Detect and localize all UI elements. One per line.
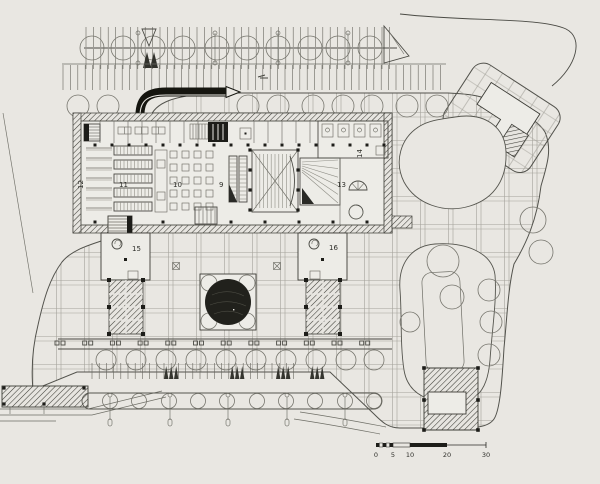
column-dot	[82, 386, 85, 389]
column-dot	[248, 168, 251, 171]
column-dot	[145, 144, 148, 147]
room-label-16: 16	[329, 244, 338, 252]
column-dot	[296, 188, 299, 191]
column-dot	[264, 144, 267, 147]
column-dot	[107, 332, 111, 336]
scale-tick-0: 0	[374, 451, 378, 459]
scale-tick-5: 5	[391, 451, 395, 459]
column-dot	[366, 144, 369, 147]
column-dot	[321, 258, 324, 261]
column-dot	[141, 278, 145, 282]
room-label-13: 13	[337, 181, 346, 189]
east-link-hatch	[392, 216, 412, 228]
column-dot	[476, 428, 480, 432]
column-dot	[422, 398, 426, 402]
column-dot	[304, 278, 308, 282]
column-dot	[338, 305, 342, 309]
column-dot	[230, 221, 233, 224]
column-dot	[162, 221, 165, 224]
column-dot	[332, 144, 335, 147]
column-dot	[162, 144, 165, 147]
fountain-speck	[233, 309, 234, 310]
column-dot	[2, 386, 5, 389]
column-dot	[107, 278, 111, 282]
column-dot	[349, 144, 352, 147]
scale-tick-30: 30	[482, 451, 490, 459]
column-dot	[422, 428, 426, 432]
column-dot	[338, 278, 342, 282]
lawn-blob-north	[399, 116, 506, 209]
column-dot	[248, 208, 251, 211]
column-dot	[296, 208, 299, 211]
column-dot	[422, 366, 426, 370]
stair-dark	[84, 124, 89, 141]
column-dot	[124, 258, 127, 261]
wall-west	[73, 113, 81, 233]
column-dot	[107, 305, 111, 309]
column-dot	[248, 148, 251, 151]
scale-tick-10: 10	[406, 451, 414, 459]
column-dot	[128, 144, 131, 147]
room-label-10: 10	[173, 181, 182, 189]
wall-north	[73, 113, 392, 121]
column-dot	[111, 144, 114, 147]
tower-15	[101, 233, 150, 280]
room-label-11: 11	[119, 181, 128, 189]
column-dot	[383, 144, 386, 147]
column-dot	[332, 221, 335, 224]
column-dot	[247, 144, 250, 147]
column-dot	[213, 144, 216, 147]
southeast-building-court	[428, 392, 466, 414]
column-dot	[264, 221, 267, 224]
column-dot	[94, 144, 97, 147]
column-dot	[2, 402, 5, 405]
column-dot	[128, 221, 131, 224]
column-dot	[230, 144, 233, 147]
room-label-14: 14	[356, 149, 364, 158]
column-dot	[296, 148, 299, 151]
column-dot	[366, 221, 369, 224]
main-building	[73, 113, 412, 236]
column-dot	[304, 332, 308, 336]
column-dot	[476, 398, 480, 402]
column-dot	[476, 366, 480, 370]
column-dot	[296, 168, 299, 171]
southeast-building	[422, 366, 480, 432]
site-plan-drawing: 9 10 11 12 13 14 15 16 0 5 10 20 30	[0, 0, 600, 484]
column-dot	[338, 332, 342, 336]
scale-tick-20: 20	[443, 451, 451, 459]
tower-16	[298, 233, 347, 280]
column-dot	[281, 144, 284, 147]
column-dot	[304, 305, 308, 309]
column-dot	[196, 144, 199, 147]
column-dot	[315, 144, 318, 147]
column-dot	[179, 144, 182, 147]
shaft-dot	[245, 133, 247, 135]
room-label-12: 12	[77, 180, 85, 189]
room-label-15: 15	[132, 245, 141, 253]
site-plan-sheet: 9 10 11 12 13 14 15 16 0 5 10 20 30	[0, 0, 600, 484]
column-dot	[298, 221, 301, 224]
column-dot	[42, 402, 45, 405]
column-dot	[298, 144, 301, 147]
column-dot	[248, 188, 251, 191]
column-dot	[141, 305, 145, 309]
column-dot	[141, 332, 145, 336]
building-floor	[73, 113, 392, 233]
column-dot	[94, 221, 97, 224]
room-label-9: 9	[219, 181, 223, 189]
